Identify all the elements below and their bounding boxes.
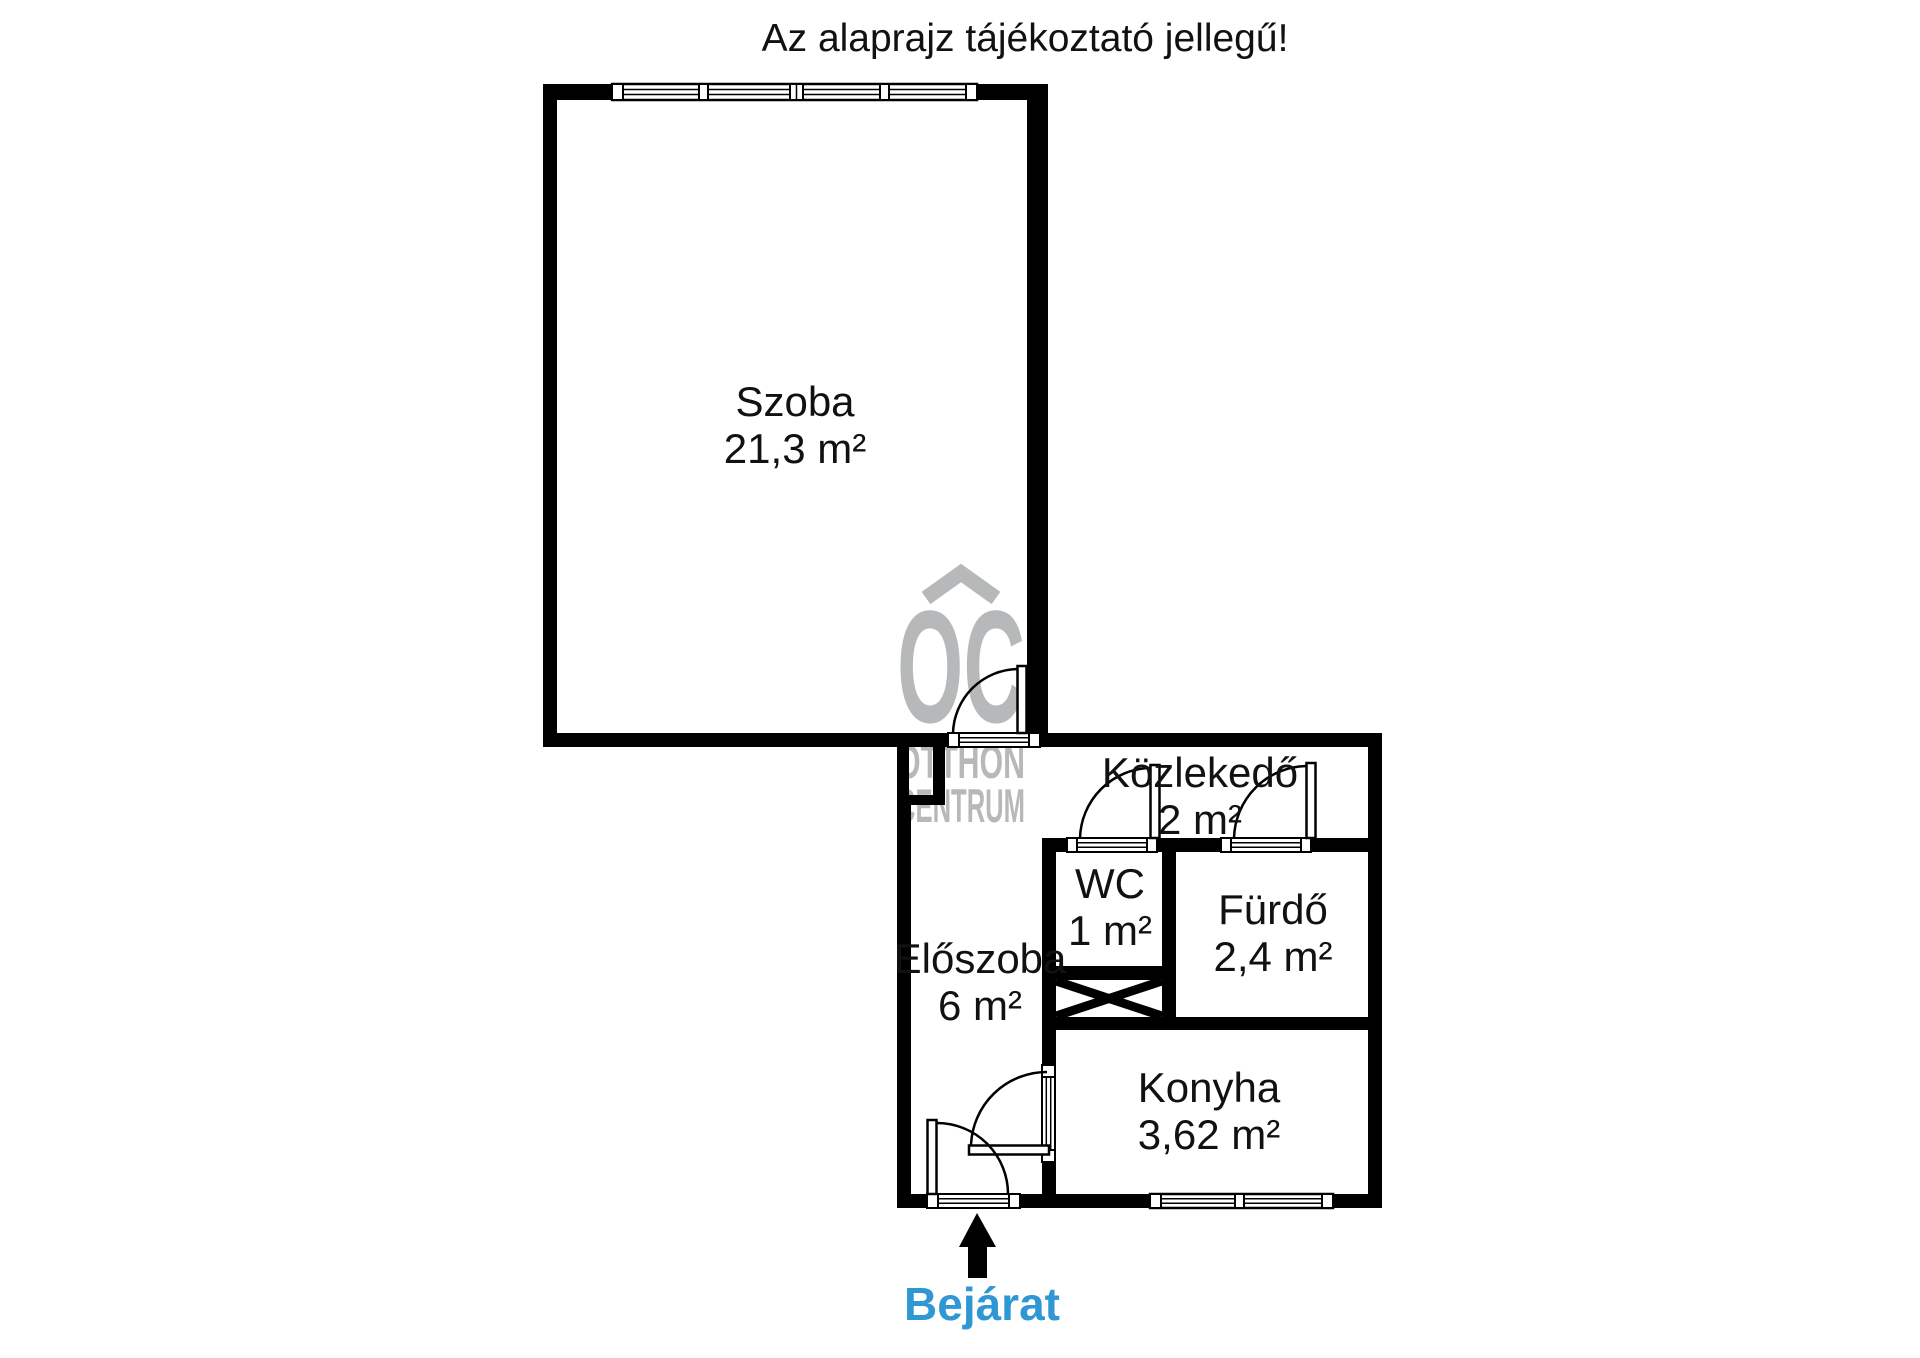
room-area: 1 m² <box>1068 907 1152 954</box>
room-area: 21,3 m² <box>724 425 866 472</box>
watermark-line2: CENTRUM <box>897 779 1025 832</box>
entrance-arrow-icon <box>959 1213 996 1278</box>
floorplan-drawing: OC OTTHON CENTRUM <box>0 0 1920 1358</box>
room-label-konyha: Konyha 3,62 m² <box>1138 1064 1280 1158</box>
door-sill-entrance <box>927 1194 1020 1208</box>
room-label-szoba: Szoba 21,3 m² <box>724 378 866 472</box>
room-area: 3,62 m² <box>1138 1111 1280 1158</box>
room-area: 6 m² <box>894 982 1067 1029</box>
room-name: Szoba <box>724 378 866 425</box>
room-area: 2 m² <box>1102 796 1298 843</box>
room-name: Konyha <box>1138 1064 1280 1111</box>
watermark-logo: OC <box>897 577 1025 756</box>
room-name: Előszoba <box>894 935 1067 982</box>
floorplan-page: Az alaprajz tájékoztató jellegű! OC OTTH… <box>0 0 1920 1358</box>
shaft-symbol <box>1056 981 1162 1016</box>
room-area: 2,4 m² <box>1213 933 1332 980</box>
room-name: Közlekedő <box>1102 749 1298 796</box>
room-label-kozlekedo: Közlekedő 2 m² <box>1102 749 1298 843</box>
room-name: Fürdő <box>1213 886 1332 933</box>
room-name: WC <box>1068 860 1152 907</box>
window-top <box>612 84 977 100</box>
room-label-eloszoba: Előszoba 6 m² <box>894 935 1067 1029</box>
window-kitchen <box>1150 1194 1333 1208</box>
room-label-wc: WC 1 m² <box>1068 860 1152 954</box>
door-sill-szoba <box>948 733 1040 747</box>
room-label-furdo: Fürdő 2,4 m² <box>1213 886 1332 980</box>
entrance-label: Bejárat <box>904 1277 1060 1331</box>
